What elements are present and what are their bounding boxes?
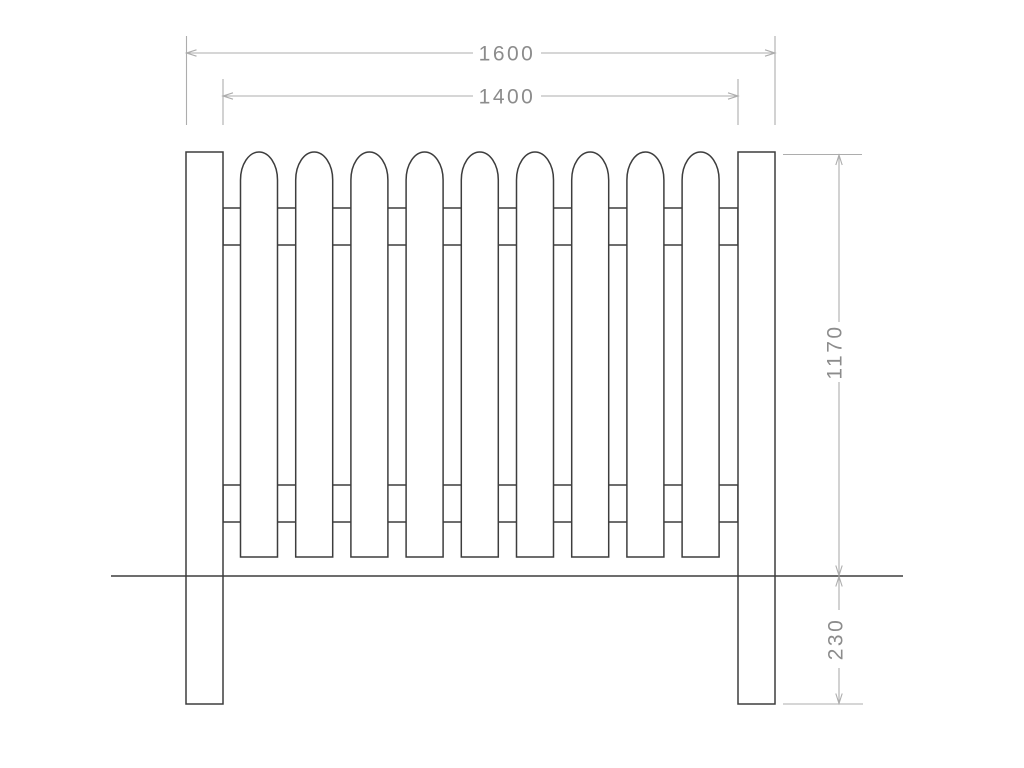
drawing-canvas: 1600 1400 1170 230 [0,0,1024,768]
picket [572,152,609,557]
dim-label-depth-below-ground: 230 [824,618,847,661]
picket [241,152,278,557]
picket [627,152,664,557]
picket [682,152,719,557]
fence-elevation-drawing: 1600 1400 1170 230 [0,0,1024,768]
dim-label-overall-width: 1600 [479,42,536,65]
dim-depth-below-ground: 230 [783,577,863,705]
picket [296,152,333,557]
dim-overall-width: 1600 [187,36,776,125]
fence-panel [186,152,775,704]
picket [461,152,498,557]
pickets [241,152,720,557]
dim-label-height-above-ground: 1170 [823,324,846,379]
dim-label-opening-width: 1400 [479,85,536,108]
dim-height-above-ground: 1170 [783,155,862,576]
picket [406,152,443,557]
right-post [738,152,775,704]
dim-opening-width: 1400 [223,79,738,125]
picket [351,152,388,557]
left-post [186,152,223,704]
picket [517,152,554,557]
